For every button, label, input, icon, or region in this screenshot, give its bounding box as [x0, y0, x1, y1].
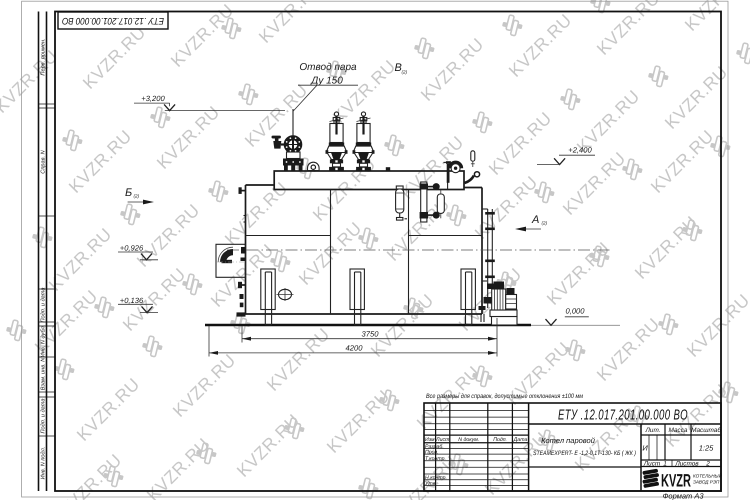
svg-text:Инв. N подл.: Инв. N подл. — [40, 447, 47, 480]
svg-text:Лист: Лист — [643, 461, 661, 468]
svg-text:И: И — [642, 444, 648, 453]
svg-text:ЕТУ .12.017.201.00.000 ВО: ЕТУ .12.017.201.00.000 ВО — [61, 15, 164, 26]
svg-text:Подп.: Подп. — [493, 437, 507, 443]
svg-text:(2): (2) — [542, 221, 548, 226]
svg-text:Все размеры для справок, допус: Все размеры для справок, допустимые откл… — [426, 393, 584, 400]
svg-text:STEAMEXPERT- Е -1,2-0,1Т-130-: STEAMEXPERT- Е -1,2-0,1Т-130- КБ ( ЖК ) — [533, 450, 636, 457]
svg-text:0,000: 0,000 — [565, 307, 585, 316]
svg-text:2: 2 — [705, 461, 710, 468]
svg-text:Котел паровой: Котел паровой — [541, 436, 596, 445]
svg-text:ЗАВОД РЭП: ЗАВОД РЭП — [693, 480, 720, 485]
svg-text:1:25: 1:25 — [699, 444, 714, 453]
svg-text:Взам. инв. N: Взам. инв. N — [41, 357, 47, 391]
svg-text:4200: 4200 — [346, 344, 364, 353]
svg-text:А: А — [531, 214, 539, 226]
svg-text:Лист: Лист — [435, 437, 450, 443]
svg-text:Изм: Изм — [425, 437, 435, 443]
svg-text:Пров.: Пров. — [425, 450, 439, 456]
svg-text:Утв.: Утв. — [425, 481, 437, 487]
svg-text:ЕТУ .12.017.201.00.000 ВО: ЕТУ .12.017.201.00.000 ВО — [558, 408, 688, 424]
svg-text:Лит.: Лит. — [645, 427, 661, 434]
svg-text:Масса: Масса — [669, 427, 688, 434]
svg-text:Б: Б — [125, 187, 132, 199]
svg-text:KVZR: KVZR — [661, 471, 691, 491]
svg-text:+2,400: +2,400 — [568, 146, 592, 155]
svg-text:Т.контр.: Т.контр. — [425, 456, 446, 462]
svg-text:3750: 3750 — [362, 329, 380, 338]
svg-text:КОТЕЛЬНЫЙ: КОТЕЛЬНЫЙ — [693, 473, 723, 479]
svg-text:+0,926: +0,926 — [120, 244, 144, 253]
svg-text:Отвод пара: Отвод пара — [299, 62, 357, 73]
svg-text:(2): (2) — [134, 194, 140, 199]
svg-text:(2): (2) — [402, 70, 408, 75]
svg-text:Дата: Дата — [513, 437, 528, 443]
svg-text:N докум.: N докум. — [458, 437, 479, 443]
svg-text:Справ. N: Справ. N — [41, 149, 47, 173]
svg-text:Подп. и дата: Подп. и дата — [40, 398, 47, 433]
svg-text:1: 1 — [663, 461, 667, 468]
svg-text:+0,136: +0,136 — [120, 296, 144, 305]
svg-text:Подп. и дата: Подп. и дата — [40, 287, 47, 322]
svg-text:+3,200: +3,200 — [141, 94, 165, 103]
svg-text:Перв. примен.: Перв. примен. — [41, 38, 47, 75]
svg-text:Листов: Листов — [674, 461, 699, 468]
svg-text:Формат А3: Формат А3 — [662, 492, 704, 500]
svg-text:Масштаб: Масштаб — [691, 427, 721, 434]
svg-text:Инв. N дубл.: Инв. N дубл. — [40, 325, 47, 357]
